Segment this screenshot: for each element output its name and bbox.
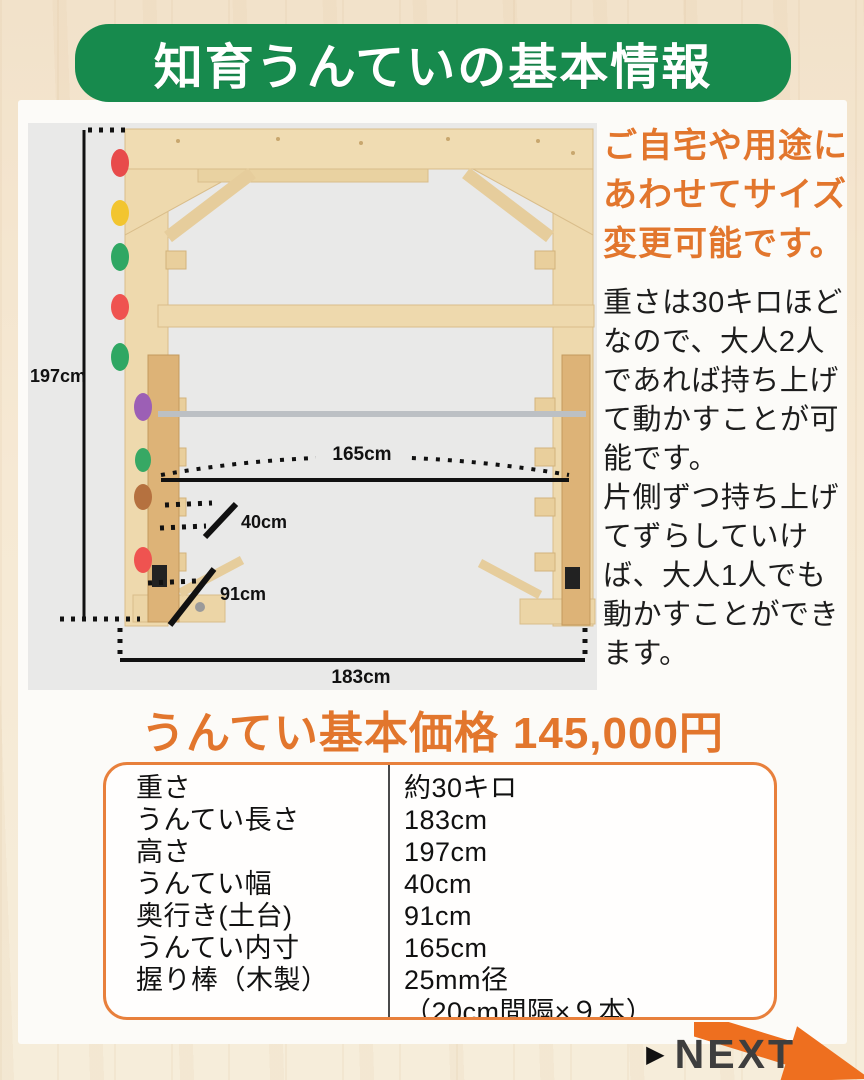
next-label: NEXT [675,1031,796,1078]
price-heading: うんてい基本価格 145,000円 [18,700,847,758]
spec-row-value: 約30キロ [404,772,774,804]
spec-row-label: 重さ [136,772,388,804]
spec-labels: 重さうんてい長さ高さうんてい幅奥行き(土台)うんてい内寸握り棒（木製） [106,765,388,1017]
info-column: ご自宅や用途に あわせてサイズ 変更可能です。 重さは30キロほど なので、大人… [603,122,849,674]
product-photo: 197cm 165cm 40cm 91cm 183cm [28,123,597,690]
next-button[interactable]: ▶ NEXT [634,1022,864,1080]
hold-icon [111,294,129,320]
spec-row-value: 91cm [404,900,774,932]
spec-values: 約30キロ183cm197cm40cm91cm165cm25mm径 （20cm間… [390,765,774,1017]
hold-icon [134,547,152,573]
hold-icon [134,393,152,421]
caster [195,602,205,612]
spec-row-label: うんてい長さ [136,804,388,836]
spec-table: 重さうんてい長さ高さうんてい幅奥行き(土台)うんてい内寸握り棒（木製） 約30キ… [103,762,777,1020]
hold-icon [111,343,129,371]
spec-row-value: 40cm [404,868,774,900]
hold-icon [135,448,151,472]
price-amount: 145,000円 [513,697,724,761]
length-dim-label: 183cm [331,667,390,688]
inner-dim-label: 165cm [332,444,391,465]
price-label: うんてい基本価格 [141,697,499,761]
spec-row-value: 197cm [404,836,774,868]
hold-icon [134,484,152,510]
width-dim-label: 40cm [241,512,287,532]
metal-bar [158,411,586,417]
spec-row-label: 握り棒（木製） [136,964,388,996]
next-triangle-icon: ▶ [646,1043,664,1067]
spec-row-label: 奥行き(土台) [136,900,388,932]
right-kicker [480,563,540,595]
page-title: 知育うんていの基本情報 [154,28,713,99]
hold-icon [111,200,129,226]
depth-dim-label: 91cm [220,584,266,604]
unten-diagram: 197cm 165cm 40cm 91cm 183cm [28,123,597,690]
top-beam [125,129,593,169]
spec-row-label: うんてい内寸 [136,932,388,964]
height-dim-label: 197cm [30,366,86,386]
spec-row-label: うんてい幅 [136,868,388,900]
spec-row-value: 183cm [404,804,774,836]
spec-row-label: 高さ [136,836,388,868]
title-banner: 知育うんていの基本情報 [75,24,791,102]
hold-icon [111,149,129,177]
size-headline: ご自宅や用途に あわせてサイズ 変更可能です。 [603,122,849,269]
right-hinge [565,567,580,589]
hold-icon [111,243,129,271]
spec-row-value: 165cm [404,932,774,964]
mid-rail [158,305,594,327]
weight-description: 重さは30キロほど なので、大人2人 であれば持ち上げ て動かすことが可 能です… [603,284,849,674]
spec-row-value: 25mm径 （20cm間隔×９本） [404,964,774,1020]
width-dim-diagonal [205,504,236,537]
content-card: 197cm 165cm 40cm 91cm 183cm ご自宅や用途に あわせて… [18,100,847,1044]
